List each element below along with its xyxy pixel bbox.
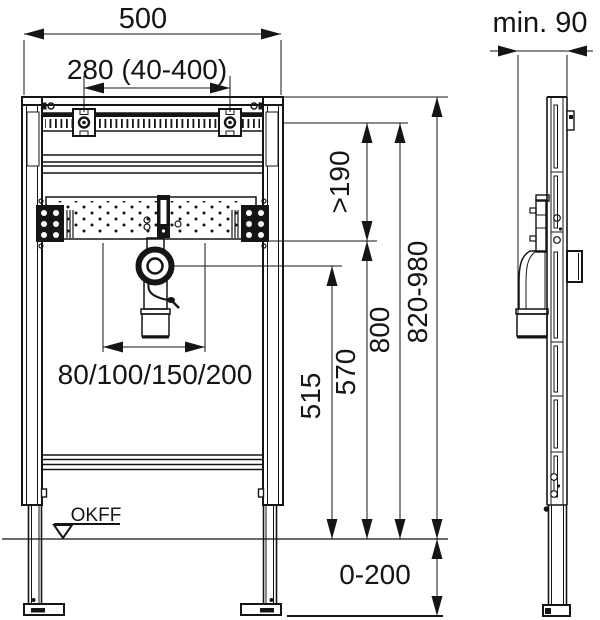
dim-frame-height-label: 820-980 [402, 241, 433, 344]
side-view: min. 90 [490, 7, 593, 616]
technical-drawing-page: OKFF 500 280 (40-400) 80/100/150/200 [0, 0, 600, 620]
arrowhead [432, 539, 443, 559]
arrowhead [261, 29, 281, 40]
wall-anchor-top [567, 111, 574, 130]
front-view [22, 97, 283, 615]
arrowhead [185, 342, 205, 353]
dim-rail-height-label: 800 [364, 307, 395, 354]
leg-clamp-right [259, 489, 264, 497]
dim-clearance-min-label: >190 [324, 150, 355, 213]
side-trap-icon [516, 251, 548, 337]
drain-trap-icon [139, 238, 180, 337]
arrowhead [567, 46, 587, 57]
dim-min-depth-label: min. 90 [492, 7, 587, 39]
dim-drain-offsets-label: 80/100/150/200 [58, 359, 253, 390]
dim-clearance-min: >190 [324, 123, 373, 241]
rail-slot-right [266, 112, 278, 166]
mounting-plate [46, 197, 256, 239]
cross-bar-bottom [42, 455, 263, 470]
arrowhead [362, 221, 373, 241]
trap-ring-outer [139, 250, 172, 283]
side-socket [517, 314, 547, 336]
dim-trap-height-label: 570 [330, 349, 361, 396]
arrowhead [362, 123, 373, 143]
arrowhead [432, 519, 443, 539]
rail-slot-left [27, 112, 39, 166]
fixing-slider-left [73, 109, 95, 136]
floor-level-marker: OKFF [2, 505, 448, 539]
arrowhead [362, 519, 373, 539]
extension-lines [171, 97, 448, 616]
installation-frame-drawing: OKFF 500 280 (40-400) 80/100/150/200 [0, 0, 600, 620]
arrowhead [498, 46, 518, 57]
dim-total-width-label: 500 [119, 3, 167, 35]
okff-label: OKFF [71, 505, 122, 526]
arrowhead [395, 123, 406, 143]
dim-outlet-height-label: 515 [295, 373, 326, 420]
arrowhead [327, 519, 338, 539]
arrowhead [432, 596, 443, 616]
arrowhead [395, 519, 406, 539]
arrowhead [362, 241, 373, 261]
side-profile [547, 97, 582, 505]
traverse-rail-lower [42, 166, 263, 173]
leg-clamp-left [42, 489, 47, 497]
drain-socket [142, 314, 169, 336]
dim-outlet-height: 515 [295, 266, 338, 539]
support-leg-right [241, 489, 281, 615]
dim-frame-height: 820-980 [402, 97, 443, 539]
traverse-rail-upper [42, 155, 263, 162]
dim-rail-height: 800 [364, 123, 406, 539]
arrowhead [432, 97, 443, 117]
arrowhead [103, 342, 123, 353]
side-leg-clamp [544, 506, 550, 512]
wall-box [567, 251, 582, 282]
arrowhead [327, 266, 338, 286]
dim-leg-range: 0-200 [339, 539, 442, 616]
dim-fixing-range-label: 280 (40-400) [67, 54, 227, 85]
frame-top-bar [22, 97, 283, 105]
level-triangle-icon [54, 525, 72, 538]
fixing-slider-right [219, 109, 241, 136]
arrowhead [24, 29, 44, 40]
dim-fixing-range: 280 (40-400) [67, 54, 230, 112]
dim-leg-range-label: 0-200 [339, 559, 411, 590]
support-leg-left [24, 489, 64, 615]
